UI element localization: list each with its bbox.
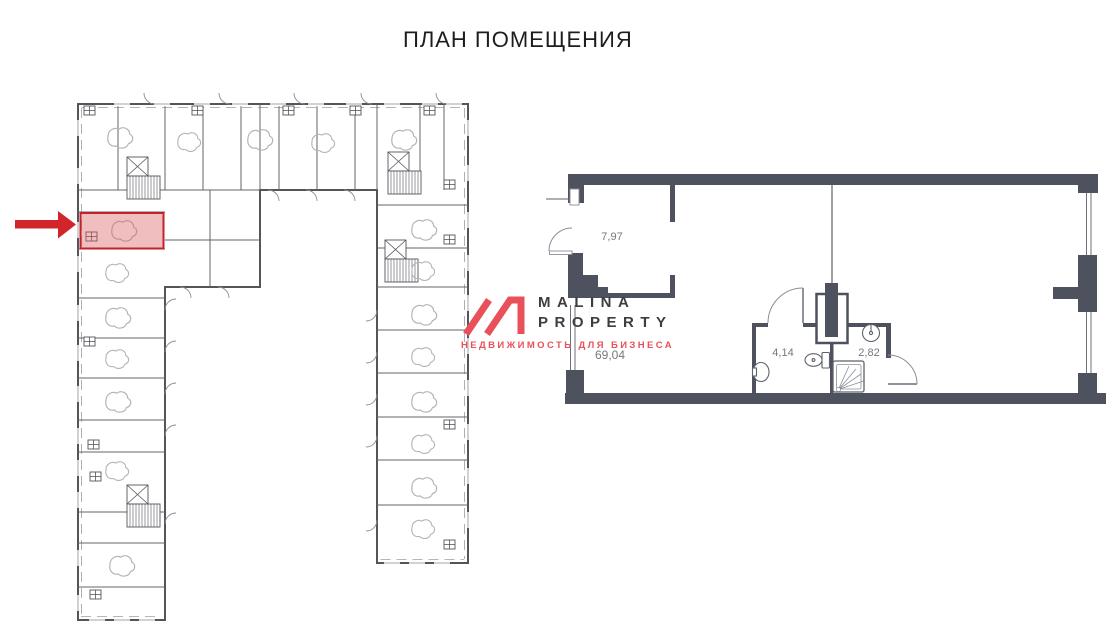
entry-door-arc-icon	[549, 228, 572, 251]
area-label-wc: 4,14	[772, 347, 793, 359]
brand-tagline: НЕДВИЖИМОСТЬ ДЛЯ БИЗНЕСА	[461, 340, 661, 351]
brand-name-line2: PROPERTY	[538, 313, 673, 333]
watermark-logo: MALINA PROPERTY НЕДВИЖИМОСТЬ ДЛЯ БИЗНЕСА	[461, 289, 661, 351]
sink-icon	[753, 363, 770, 382]
brand-name-line1: MALINA	[538, 293, 673, 313]
malina-logo-icon	[461, 289, 529, 337]
building-overview-plan	[0, 85, 500, 643]
boiler-icon	[863, 325, 880, 342]
entry-door-leaf-icon	[570, 189, 579, 205]
shower-door-arc-icon	[888, 355, 917, 384]
toilet-icon	[805, 353, 830, 369]
wc-door-arc-icon	[768, 288, 803, 323]
page-title: ПЛАН ПОМЕЩЕНИЯ	[403, 27, 633, 53]
highlighted-unit	[81, 213, 164, 249]
plumbing-shaft	[817, 185, 848, 343]
area-label-shower: 2,82	[858, 347, 879, 359]
location-arrow-icon	[15, 211, 76, 239]
floor-plan-page: ПЛАН ПОМЕЩЕНИЯ	[0, 0, 1114, 643]
shower-tray-icon	[833, 361, 864, 392]
area-label-hall: 7,97	[601, 231, 622, 243]
